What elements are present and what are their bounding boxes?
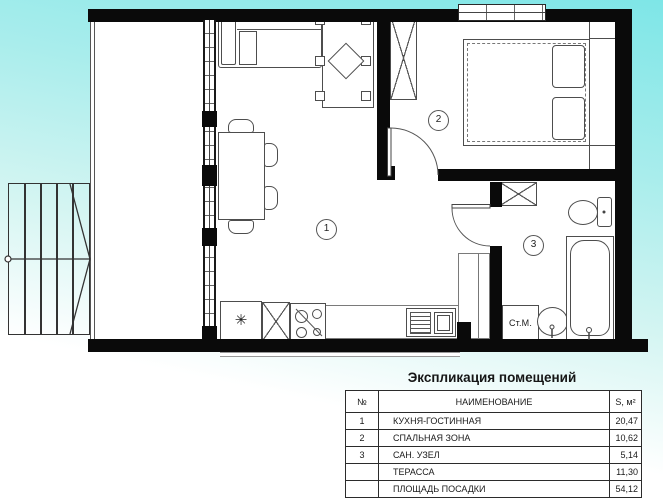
table-leg xyxy=(315,91,325,101)
cell-number: 2 xyxy=(346,430,379,447)
vent-shaft xyxy=(500,182,537,206)
room-label-3: 3 xyxy=(523,235,544,256)
wall-divider xyxy=(377,18,390,168)
cell-number xyxy=(346,464,379,481)
kitchen-sink-unit xyxy=(406,308,456,337)
bathtub-inner xyxy=(570,240,610,336)
stair-step xyxy=(40,184,42,334)
cell-name: ТЕРАССА xyxy=(379,464,610,481)
cell-number: 1 xyxy=(346,413,379,430)
cell-area: 11,30 xyxy=(610,464,642,481)
wall-bottom xyxy=(88,339,648,352)
cell-number: 3 xyxy=(346,447,379,464)
cell-area: 5,14 xyxy=(610,447,642,464)
wall-pier xyxy=(202,111,217,127)
stove xyxy=(290,303,326,341)
burner xyxy=(313,328,321,336)
screen: ✳ Ст.М. xyxy=(0,0,663,502)
explication-table: № НАИМЕНОВАНИЕ S, м² 1 КУХНЯ-ГОСТИННАЯ 2… xyxy=(345,390,642,498)
stair-step xyxy=(24,184,26,334)
wall-bathroom-left-lower xyxy=(490,246,502,343)
wall-top xyxy=(88,9,632,22)
nightstand xyxy=(589,145,616,171)
snowflake-icon: ✳ xyxy=(221,311,261,329)
wall-pier xyxy=(202,165,217,186)
chair xyxy=(264,143,278,167)
terrace-edge xyxy=(90,20,95,339)
fridge: ✳ xyxy=(220,301,262,341)
header-area: S, м² xyxy=(610,391,642,413)
sofa-armrest xyxy=(221,15,236,65)
sofa-cushion xyxy=(239,31,257,65)
burner xyxy=(312,309,322,319)
sink-bowl xyxy=(434,312,453,334)
stair-step xyxy=(56,184,58,334)
cell-number xyxy=(346,481,379,498)
table-row: 1 КУХНЯ-ГОСТИННАЯ 20,47 xyxy=(346,413,642,430)
table-leg xyxy=(315,56,325,66)
sink-cabinet xyxy=(262,302,290,341)
bed xyxy=(463,39,590,146)
table-row: ПЛОЩАДЬ ПОСАДКИ 54,12 xyxy=(346,481,642,498)
pillow xyxy=(552,97,585,140)
wardrobe xyxy=(390,16,417,100)
dish-drainer xyxy=(410,312,431,334)
chair xyxy=(228,220,254,234)
sofa-seat-line xyxy=(237,29,322,30)
table-leg xyxy=(361,91,371,101)
wall-bathroom-left-upper xyxy=(490,182,502,207)
wall-counter-pier xyxy=(457,322,471,340)
floor-plan: ✳ Ст.М. xyxy=(0,0,663,370)
cell-name: ПЛОЩАДЬ ПОСАДКИ xyxy=(379,481,610,498)
toilet-bowl xyxy=(568,200,598,225)
header-number: № xyxy=(346,391,379,413)
wall-pier xyxy=(202,326,217,340)
dining-table xyxy=(218,132,265,220)
pillow xyxy=(552,45,585,88)
cell-name: САН. УЗЕЛ xyxy=(379,447,610,464)
table-row: ТЕРАССА 11,30 xyxy=(346,464,642,481)
washing-machine: Ст.М. xyxy=(502,305,539,343)
cell-area: 54,12 xyxy=(610,481,642,498)
bathtub xyxy=(566,236,614,340)
room-label-1: 1 xyxy=(316,219,337,240)
table-row: 2 СПАЛЬНАЯ ЗОНА 10,62 xyxy=(346,430,642,447)
wall-divider-foot xyxy=(377,166,395,180)
table-row: 3 САН. УЗЕЛ 5,14 xyxy=(346,447,642,464)
cell-area: 10,62 xyxy=(610,430,642,447)
table-header-row: № НАИМЕНОВАНИЕ S, м² xyxy=(346,391,642,413)
terrace-area xyxy=(93,20,217,339)
wall-bedroom-bottom xyxy=(438,169,632,181)
window xyxy=(458,4,546,21)
threshold-step xyxy=(220,352,460,357)
explication-title: Экспликация помещений xyxy=(333,370,651,385)
sink-bowl-inner xyxy=(437,315,450,331)
toilet-cistern xyxy=(597,197,612,227)
chair xyxy=(228,119,254,133)
cell-area: 20,47 xyxy=(610,413,642,430)
stair-step xyxy=(72,184,74,334)
header-name: НАИМЕНОВАНИЕ xyxy=(379,391,610,413)
wall-pier xyxy=(202,228,217,246)
bathroom-sink xyxy=(537,307,568,336)
chair xyxy=(264,186,278,210)
burner xyxy=(295,310,308,323)
cell-name: СПАЛЬНАЯ ЗОНА xyxy=(379,430,610,447)
cell-name: КУХНЯ-ГОСТИННАЯ xyxy=(379,413,610,430)
burner xyxy=(296,327,307,338)
washing-machine-label: Ст.М. xyxy=(503,318,538,328)
stairs xyxy=(8,183,90,335)
room-label-2: 2 xyxy=(428,110,449,131)
